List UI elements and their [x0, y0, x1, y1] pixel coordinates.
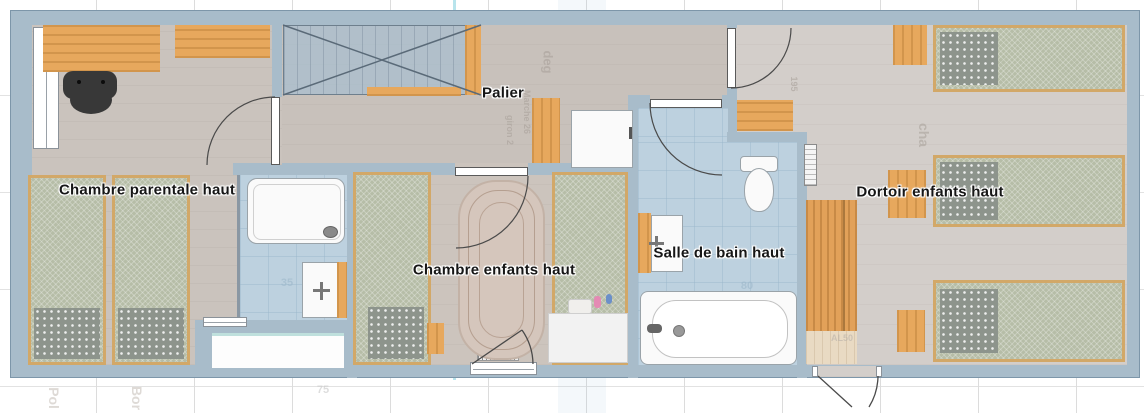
- wall-bathroom-top-b: [722, 95, 737, 108]
- stair-top-step: [465, 25, 481, 95]
- office-chair-seat: [70, 86, 112, 114]
- stair-landing-step: [367, 87, 461, 96]
- toilet-bowl[interactable]: [744, 168, 774, 212]
- doorway-dortoir-bottom: [818, 366, 876, 377]
- tub-drain-icon: [673, 325, 685, 337]
- watermark-text: Bor: [129, 386, 145, 410]
- floor-bathroom-upper: [638, 108, 728, 142]
- label-dortoir: Dortoir enfants haut: [856, 184, 1003, 201]
- watermark-text: Marche 26: [522, 90, 532, 134]
- door-enfants[interactable]: [455, 167, 528, 176]
- watermark-text: 35: [281, 277, 293, 289]
- watermark-text: deg: [541, 50, 556, 73]
- wall-shower-partition: [237, 175, 240, 320]
- bed-parentale-2[interactable]: [112, 175, 190, 365]
- shower-sink-shelf: [337, 262, 347, 318]
- washer-handle-icon: [629, 127, 632, 139]
- door-bathroom[interactable]: [650, 99, 722, 108]
- bed-dortoir-3[interactable]: [933, 280, 1125, 362]
- door-parentale[interactable]: [271, 97, 280, 165]
- label-salle-de-bain: Salle de bain haut: [653, 245, 784, 262]
- nightstand-enfants[interactable]: [427, 323, 444, 354]
- window-enfants-bottom[interactable]: [470, 362, 537, 375]
- washing-machine[interactable]: [571, 110, 633, 168]
- watermark-text: 80: [741, 280, 753, 292]
- chair-detail-dot: [77, 80, 81, 84]
- bathtub[interactable]: [640, 291, 797, 365]
- desk-enfants[interactable]: [548, 313, 628, 363]
- shower-drain-icon: [323, 226, 338, 238]
- palier-cabinet[interactable]: [532, 98, 560, 163]
- bed-parentale-1[interactable]: [28, 175, 106, 365]
- label-chambre-parentale: Chambre parentale haut: [59, 182, 235, 199]
- facade-recess-edge: [212, 333, 344, 336]
- wall-dortoir-left-b: [727, 88, 737, 95]
- floor-plan-canvas: Chambre parentale haut Palier Chambre en…: [0, 0, 1144, 413]
- radiator[interactable]: [804, 144, 817, 186]
- label-palier: Palier: [482, 85, 524, 102]
- watermark-text: 75: [317, 384, 329, 396]
- wall-parentale-right-upper: [272, 25, 282, 97]
- wall-bathroom-top-a: [638, 95, 650, 108]
- label-chambre-enfants: Chambre enfants haut: [413, 262, 575, 279]
- nightstand-dortoir-1[interactable]: [893, 25, 927, 65]
- chair-detail-dot: [101, 80, 105, 84]
- toy-pink: [594, 296, 601, 308]
- bed-dortoir-1[interactable]: [933, 25, 1125, 92]
- watermark-text: 195: [789, 76, 799, 91]
- facade-recess: [212, 333, 344, 368]
- watermark-text: giron 2: [505, 115, 515, 145]
- window-shower-room[interactable]: [203, 317, 247, 327]
- desk-parentale-right[interactable]: [175, 25, 270, 58]
- toy-blue: [606, 294, 612, 304]
- shower-tray[interactable]: [247, 178, 345, 244]
- nightstand-dortoir-3[interactable]: [897, 310, 925, 352]
- toy-tray: [568, 299, 592, 314]
- desk-parentale-left[interactable]: [43, 25, 160, 72]
- tub-faucet-icon: [647, 324, 662, 333]
- wardrobe-dortoir[interactable]: [806, 200, 857, 331]
- wall-bathroom-step: [727, 132, 807, 142]
- doorjamb-dortoir-right: [876, 366, 882, 377]
- watermark-text: cha: [916, 123, 932, 147]
- door-dortoir[interactable]: [727, 28, 736, 88]
- staircase[interactable]: [283, 25, 481, 95]
- watermark-text: AL50: [831, 333, 853, 343]
- cabinet-dortoir[interactable]: [737, 100, 793, 131]
- watermark-text: Pol: [46, 387, 62, 409]
